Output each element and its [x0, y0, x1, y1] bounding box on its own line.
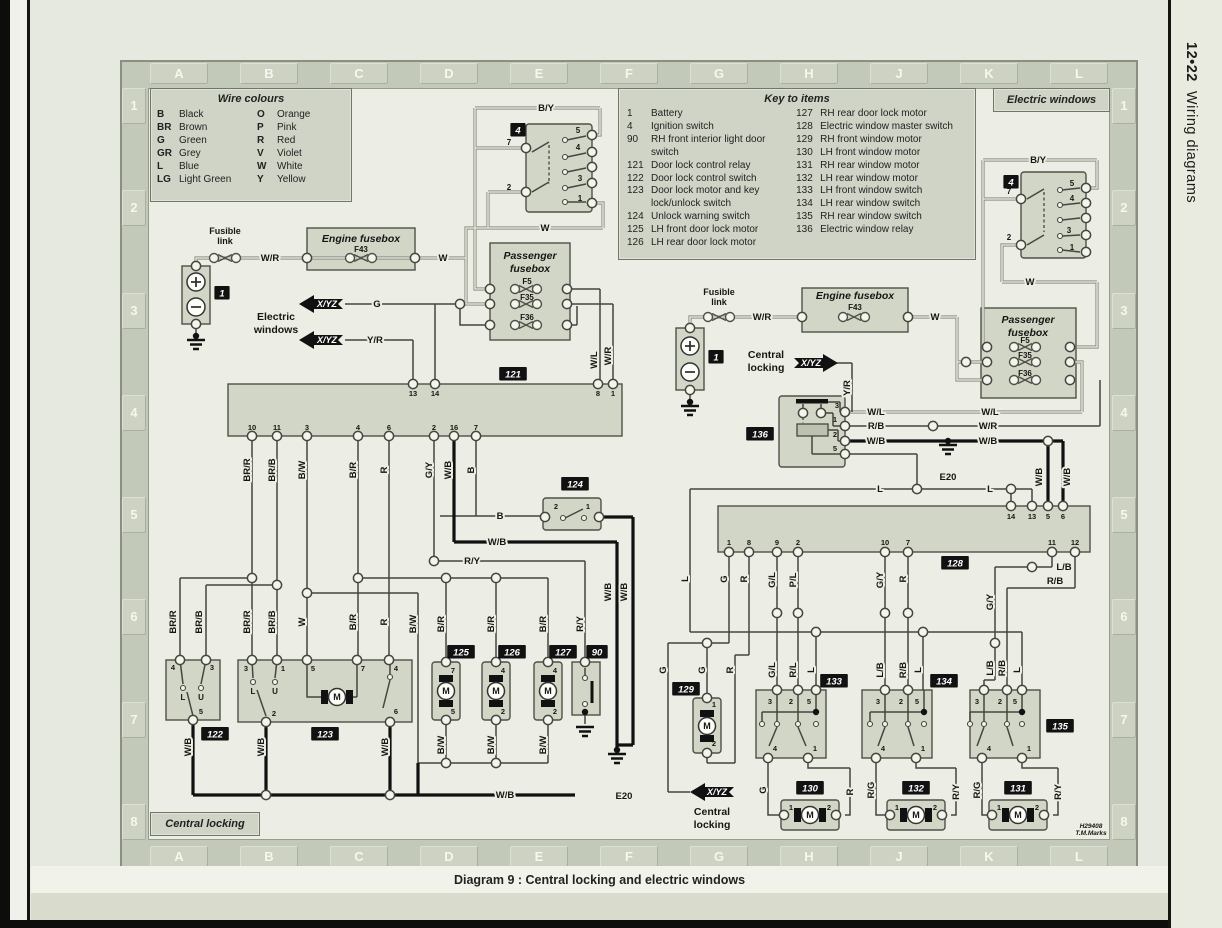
diagram-label: B/R [436, 616, 447, 633]
component-badge-number: 90 [592, 648, 603, 659]
connector-circle [798, 408, 807, 417]
wire-colour-name: Light Green [179, 173, 257, 186]
connector-circle [485, 320, 494, 329]
connector-circle [797, 312, 806, 321]
junction-dot [921, 709, 927, 715]
component-badge-number: 124 [567, 480, 584, 491]
diagram-label: W/B [619, 583, 630, 602]
connector-circle [1065, 342, 1074, 351]
connector-circle [793, 685, 802, 694]
diagram-label: 7 [451, 666, 455, 675]
connector-circle [903, 312, 912, 321]
connector-circle [430, 379, 439, 388]
connector-circle [261, 717, 270, 726]
diagram-label: F36 [1018, 369, 1032, 378]
diagram-label: W/R [753, 312, 772, 323]
connector-circle [491, 657, 500, 666]
arrow-label: X/YZ [316, 335, 338, 345]
diagram-caption: Diagram 9 : Central locking and electric… [454, 873, 745, 887]
connector-circle [441, 715, 450, 724]
diagram-label: 14 [1007, 512, 1016, 521]
connector-circle [811, 627, 820, 636]
wire-colour-name: White [277, 160, 345, 173]
component-badge-number: 127 [555, 648, 572, 659]
diagram-label: B/R [348, 462, 359, 479]
diagram-label: 2 [712, 739, 716, 748]
diagram-label: 1 [578, 194, 583, 203]
component-badge-number: 1 [219, 289, 224, 300]
key-item: 130 LH front window motor [796, 147, 967, 160]
key-item-label: RH rear window switch [820, 211, 967, 224]
wire-colours-list: B Black O Orange BR Brown P Pink G Green… [157, 108, 345, 186]
junction-dot [1019, 709, 1025, 715]
key-item: 129 RH front window motor [796, 134, 967, 147]
diagram-label: 4 [1070, 194, 1075, 203]
connector-circle [491, 573, 500, 582]
contact-circle [1058, 218, 1063, 223]
diagram-label: 5 [199, 707, 203, 716]
connector-circle [903, 685, 912, 694]
diagram-label: BR/R [168, 610, 179, 633]
key-item-number: 136 [796, 224, 820, 237]
contact-circle [181, 686, 186, 691]
diagram-label: 3 [244, 664, 248, 673]
diagram-label: 7 [906, 538, 910, 547]
diagram-label: W/B [867, 436, 886, 447]
key-item-number: 129 [796, 134, 820, 147]
connector-circle [521, 143, 530, 152]
diagram-label: M [442, 686, 450, 696]
connector-circle [1017, 753, 1026, 762]
ground-icon [939, 445, 957, 454]
connector-circle [1081, 213, 1090, 222]
key-item-label: RH rear window motor [820, 160, 967, 173]
key-item-number: 134 [796, 198, 820, 211]
diagram-label: R [845, 788, 856, 795]
connector-circle [840, 421, 849, 430]
diagram-label: L [251, 687, 256, 696]
connector-circle [410, 253, 419, 262]
key-item-label: RH front window motor [820, 134, 967, 147]
diagram-label: BR/B [267, 458, 278, 481]
diagram-label: 2 [553, 707, 557, 716]
component-badge-number: 125 [453, 648, 470, 659]
connector-circle [702, 748, 711, 757]
diagram-label: 8 [747, 538, 751, 547]
connector-circle [247, 573, 256, 582]
diagram-label: BR/B [267, 610, 278, 633]
relay-121-box [228, 384, 622, 436]
contact-circle [883, 722, 888, 727]
contact-circle [563, 155, 568, 160]
diagram-label: H29408 [1080, 823, 1103, 830]
diagram-label: R/G [972, 782, 983, 799]
diagram-label: 10 [248, 423, 256, 432]
contact-circle [563, 200, 568, 205]
connector-circle [385, 717, 394, 726]
key-item-number: 130 [796, 147, 820, 160]
connector-circle [384, 431, 393, 440]
connector-circle [1006, 501, 1015, 510]
diagram-label: 5 [576, 126, 581, 135]
diagram-label: 7 [361, 664, 365, 673]
key-item-label: Door lock control switch [651, 173, 790, 186]
diagram-label: L [181, 693, 186, 702]
diagram-label: M [806, 810, 814, 820]
connector-circle [772, 685, 781, 694]
contact-circle [968, 722, 973, 727]
contact-circle [868, 722, 873, 727]
relay-136-coil [797, 424, 828, 436]
contact-circle [982, 722, 987, 727]
contact-circle [273, 680, 278, 685]
connector-circle [247, 431, 256, 440]
diagram-label: B/Y [1030, 155, 1047, 166]
arrow-label: X/YZ [706, 787, 728, 797]
component-badge-number: 128 [947, 559, 964, 570]
diagram-label: U [272, 687, 278, 696]
diagram-label: R [379, 466, 390, 473]
contact-circle [199, 686, 204, 691]
diagram-label: 3 [835, 401, 839, 410]
connector-circle [562, 320, 571, 329]
connector-circle [1070, 547, 1079, 556]
diagram-label: 10 [881, 538, 889, 547]
contact-circle [814, 722, 819, 727]
diagram-label: 13 [409, 389, 417, 398]
connector-circle [441, 573, 450, 582]
connector-circle [580, 657, 589, 666]
diagram-label: 2 [796, 538, 800, 547]
diagram-label: B/W [486, 736, 497, 755]
diagram-label: 2 [432, 423, 436, 432]
connector-circle [491, 758, 500, 767]
diagram-label: W/R [603, 347, 614, 366]
diagram-label: W/L [981, 407, 999, 418]
component-badge-number: 121 [505, 370, 521, 381]
diagram-label: E20 [616, 791, 633, 802]
wire-colours-legend: Wire colours B Black O Orange BR Brown P… [150, 88, 352, 202]
contact-circle [1058, 188, 1063, 193]
key-to-items-title: Key to items [627, 93, 967, 105]
diagram-label: locking [694, 819, 731, 831]
diagram-label: 9 [775, 538, 779, 547]
diagram-label: W/B [1034, 468, 1045, 487]
diagram-label: R/Y [575, 615, 586, 632]
component-badge-number: 129 [678, 685, 695, 696]
connector-circle [441, 657, 450, 666]
connector-circle [763, 753, 772, 762]
diagram-label: T.M.Marks [1075, 830, 1107, 837]
connector-circle [1043, 501, 1052, 510]
diagram-label: R/B [898, 662, 909, 679]
connector-circle [247, 655, 256, 664]
key-item-label: LH rear door lock motor [651, 237, 790, 250]
connector-circle [587, 162, 596, 171]
diagram-label: L [1012, 667, 1023, 673]
diagram-label: BR/B [194, 610, 205, 633]
diagram-label: 3 [210, 663, 214, 672]
connector-circle [485, 299, 494, 308]
wire-colour-name: Red [277, 134, 345, 147]
diagram-label: 11 [273, 423, 281, 432]
connector-circle [1027, 562, 1036, 571]
diagram-label: 12 [1071, 538, 1079, 547]
diagram-label: W/R [261, 253, 280, 264]
diagram-label: W/B [496, 790, 515, 801]
connector-circle [441, 758, 450, 767]
diagram-label: F36 [520, 313, 534, 322]
diagram-label: 1 [586, 502, 590, 511]
component-badge-number: 123 [317, 730, 334, 741]
connector-circle [772, 547, 781, 556]
diagram-label: B/W [408, 615, 419, 634]
junction-dot [582, 709, 588, 715]
diagram-label: B [466, 466, 477, 473]
key-item-number: 125 [627, 224, 651, 237]
key-item-number: 132 [796, 173, 820, 186]
key-item-number: 124 [627, 211, 651, 224]
connector-circle [587, 198, 596, 207]
connector-circle [587, 147, 596, 156]
connector-circle [937, 810, 946, 819]
diagram-label: W [1026, 277, 1035, 288]
diagram-label: M [1014, 810, 1022, 820]
fuse-icon [704, 313, 735, 322]
connector-circle [793, 547, 802, 556]
diagram-label: F5 [1020, 336, 1030, 345]
wire-colour-code: LG [157, 173, 179, 186]
key-item: 128 Electric window master switch [796, 121, 967, 134]
key-item: 121 Door lock control relay [627, 160, 790, 173]
connector-circle [594, 512, 603, 521]
diagram-label: 1 [611, 389, 615, 398]
diagram-label: 1 [281, 664, 285, 673]
diagram-label: 1 [1070, 243, 1075, 252]
key-item: 123 Door lock motor and key lock/unlock … [627, 185, 790, 211]
key-items-right-column: 127 RH rear door lock motor 128 Electric… [796, 108, 967, 250]
diagram-label: 2 [507, 183, 512, 192]
key-item: 4 Ignition switch [627, 121, 790, 134]
key-item: 136 Electric window relay [796, 224, 967, 237]
diagram-label: 3 [1067, 226, 1072, 235]
component-badge-number: 130 [802, 784, 819, 795]
diagram-label: R/L [788, 662, 799, 678]
diagram-label: G [719, 575, 730, 582]
diagram-label: W [297, 617, 308, 626]
connector-circle [429, 556, 438, 565]
connector-circle [593, 379, 602, 388]
component-badge-number: 1 [713, 353, 718, 364]
wire-colour-code: V [257, 147, 277, 160]
connector-circle [175, 655, 184, 664]
connector-circle [1002, 685, 1011, 694]
component-badge-number: 122 [207, 730, 224, 741]
connector-circle [977, 753, 986, 762]
diagram-label: Electric [257, 311, 295, 323]
wire-colour-code: L [157, 160, 179, 173]
connector-circle [562, 299, 571, 308]
key-item-label: LH front window switch [820, 185, 967, 198]
connector-circle [471, 431, 480, 440]
connector-circle [811, 685, 820, 694]
connector-circle [540, 512, 549, 521]
diagram-caption-strip: Diagram 9 : Central locking and electric… [31, 866, 1168, 893]
key-item: 126 LH rear door lock motor [627, 237, 790, 250]
diagram-label: F43 [848, 303, 862, 312]
connector-circle [1081, 247, 1090, 256]
contact-circle [563, 186, 568, 191]
connector-circle [191, 261, 200, 270]
diagram-label: W/B [1062, 468, 1073, 487]
contact-circle [561, 516, 566, 521]
connector-circle [1081, 198, 1090, 207]
wire-colour-name: Pink [277, 121, 345, 134]
connector-circle [840, 449, 849, 458]
wire-colour-name: Blue [179, 160, 257, 173]
component-badge-number: 132 [908, 784, 925, 795]
diagram-label: M [492, 686, 500, 696]
connector-circle [928, 421, 937, 430]
connector-circle [491, 715, 500, 724]
connector-circle [903, 547, 912, 556]
connector-circle [840, 407, 849, 416]
diagram-label: W/R [979, 421, 998, 432]
key-item-number: 126 [627, 237, 651, 250]
connector-circle [188, 715, 197, 724]
diagram-label: 4 [576, 143, 581, 152]
key-item: 133 LH front window switch [796, 185, 967, 198]
key-item-label: Ignition switch [651, 121, 790, 134]
electric-windows-tag: Electric windows [993, 88, 1110, 112]
diagram-label: Engine fusebox [322, 233, 401, 245]
diagram-label: W/B [979, 436, 998, 447]
key-item-label: LH front door lock motor [651, 224, 790, 237]
diagram-label: L/B [1056, 562, 1071, 573]
connector-circle [840, 436, 849, 445]
diagram-label: 5 [1013, 697, 1017, 706]
contact-circle [796, 722, 801, 727]
junction-dot [945, 438, 951, 444]
connector-circle [982, 375, 991, 384]
key-item: 124 Unlock warning switch [627, 211, 790, 224]
diagram-label: R/B [868, 421, 885, 432]
connector-circle [724, 547, 733, 556]
diagram-label: fusebox [510, 263, 551, 275]
diagram-label: M [703, 721, 711, 731]
connector-circle [385, 790, 394, 799]
connector-circle [1016, 194, 1025, 203]
diagram-label: W/B [603, 583, 614, 602]
diagram-label: W/B [256, 738, 267, 757]
diagram-label: B/W [436, 736, 447, 755]
key-item: 127 RH rear door lock motor [796, 108, 967, 121]
diagram-label: 3 [975, 697, 979, 706]
central-locking-tag: Central locking [150, 812, 260, 836]
connector-circle [685, 323, 694, 332]
connector-circle [918, 627, 927, 636]
diagram-label: W/L [589, 351, 600, 369]
connector-circle [1065, 375, 1074, 384]
diagram-label: G/Y [985, 593, 996, 610]
connector-circle [871, 753, 880, 762]
key-item: 134 LH rear window switch [796, 198, 967, 211]
connector-circle [353, 573, 362, 582]
connector-circle [608, 379, 617, 388]
key-item-label: RH rear door lock motor [820, 108, 967, 121]
key-to-items-legend: Key to items 1 Battery 4 Ignition switch [618, 88, 976, 260]
diagram-label: B [497, 511, 504, 522]
connector-circle [408, 379, 417, 388]
junction-dot [614, 747, 620, 753]
junction-dot [193, 333, 199, 339]
diagram-label: L/B [985, 660, 996, 675]
diagram-label: L [987, 484, 993, 495]
arrow-label: X/YZ [316, 299, 338, 309]
diagram-label: G/Y [875, 571, 886, 588]
diagram-label: 1 [1027, 744, 1031, 753]
diagram-label: W/B [380, 738, 391, 757]
connector-circle [384, 655, 393, 664]
key-item: 131 RH rear window motor [796, 160, 967, 173]
wire-colour-name: Yellow [277, 173, 345, 186]
diagram-label: Y/R [842, 380, 853, 396]
diagram-label: 2 [1035, 803, 1039, 812]
key-item: 1 Battery [627, 108, 790, 121]
diagram-label: R [725, 666, 736, 673]
diagram-label: L [806, 667, 817, 673]
wire-colour-code: Y [257, 173, 277, 186]
diagram-label: R/G [866, 782, 877, 799]
diagram-label: 3 [876, 697, 880, 706]
contact-circle [563, 138, 568, 143]
contact-circle [760, 722, 765, 727]
connector-circle [880, 685, 889, 694]
diagram-label: 5 [833, 444, 837, 453]
diagram-label: Fusible [209, 226, 241, 236]
contact-circle [563, 170, 568, 175]
diagram-label: 1 [789, 803, 793, 812]
key-item-number: 1 [627, 108, 651, 121]
connector-circle [562, 284, 571, 293]
contact-circle [583, 702, 588, 707]
diagram-label: 2 [789, 697, 793, 706]
connector-circle [702, 638, 711, 647]
junction-dot [813, 709, 819, 715]
diagram-label: 7 [1007, 187, 1012, 196]
junction-dot [687, 399, 693, 405]
wire-colour-code: GR [157, 147, 179, 160]
diagram-label: W/L [867, 407, 885, 418]
connector-circle [1043, 436, 1052, 445]
connector-circle [261, 790, 270, 799]
diagram-label: 2 [554, 502, 558, 511]
connector-circle [272, 431, 281, 440]
diagram-label: 3 [305, 423, 309, 432]
diagram-label: L [913, 667, 924, 673]
diagram-label: Y/R [367, 335, 383, 346]
contact-circle [906, 722, 911, 727]
connector-circle [1027, 501, 1036, 510]
diagram-label: 16 [450, 423, 458, 432]
connector-circle [449, 431, 458, 440]
diagram-label: Passenger [503, 250, 557, 262]
connector-circle [911, 753, 920, 762]
connector-circle [272, 580, 281, 589]
diagram-label: F35 [520, 293, 534, 302]
connector-circle [1065, 357, 1074, 366]
diagram-label: 2 [1007, 233, 1012, 242]
